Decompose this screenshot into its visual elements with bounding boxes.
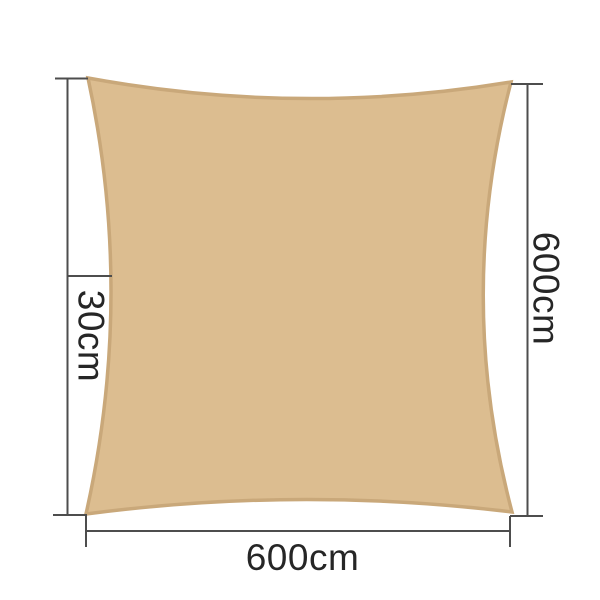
bottom-width-label: 600cm (246, 537, 360, 578)
shade-sail-fabric (86, 78, 512, 514)
diagram-canvas: 30cm 600cm 600cm (0, 0, 600, 600)
shade-sail-dimension-diagram: 30cm 600cm 600cm (0, 0, 600, 600)
sag-depth-label: 30cm (71, 290, 112, 382)
side-height-label: 600cm (526, 232, 567, 346)
